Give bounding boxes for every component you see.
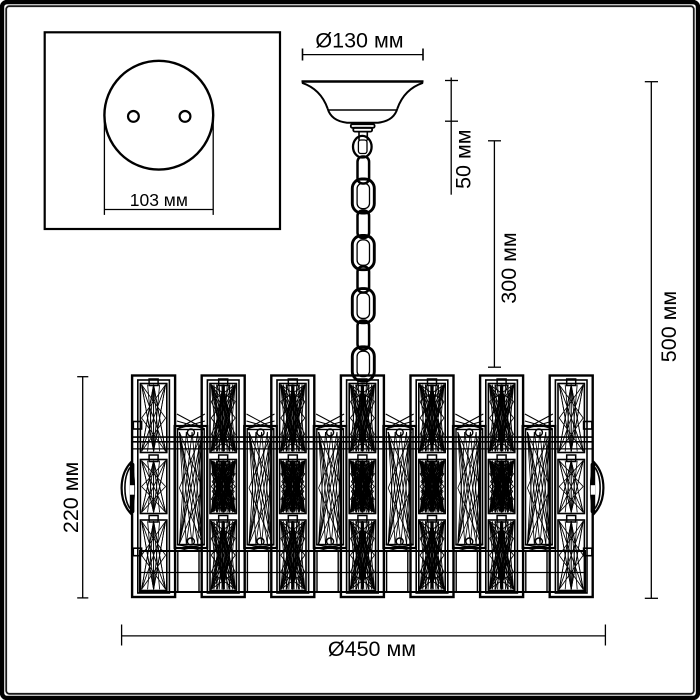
svg-text:Ø130 мм: Ø130 мм [315, 28, 403, 52]
svg-text:300 мм: 300 мм [497, 232, 521, 303]
svg-text:Ø450 мм: Ø450 мм [328, 637, 416, 661]
svg-text:500 мм: 500 мм [657, 291, 681, 362]
svg-text:220 мм: 220 мм [59, 462, 83, 533]
svg-text:103 мм: 103 мм [130, 190, 188, 210]
svg-text:50 мм: 50 мм [452, 129, 476, 188]
